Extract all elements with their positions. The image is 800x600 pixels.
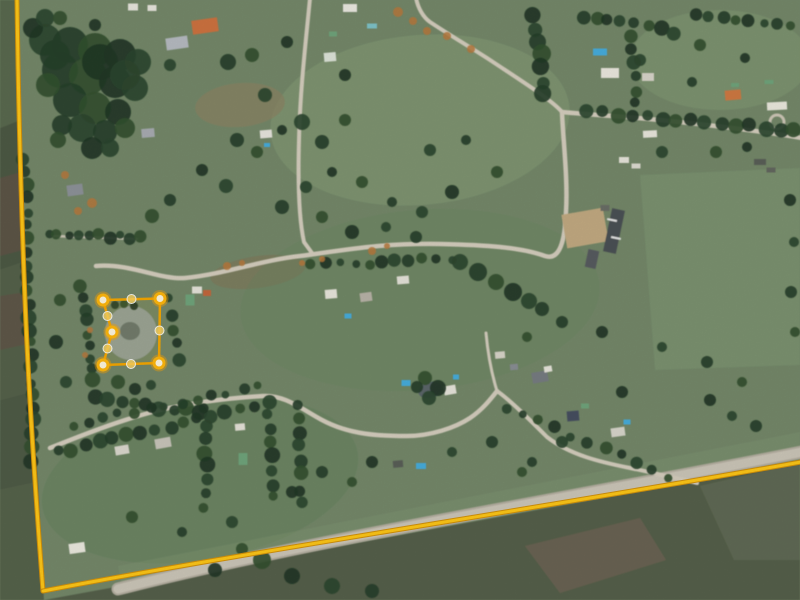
map-viewport[interactable] (0, 0, 800, 600)
grain-overlay (0, 0, 800, 600)
satellite-canvas[interactable] (0, 0, 800, 600)
